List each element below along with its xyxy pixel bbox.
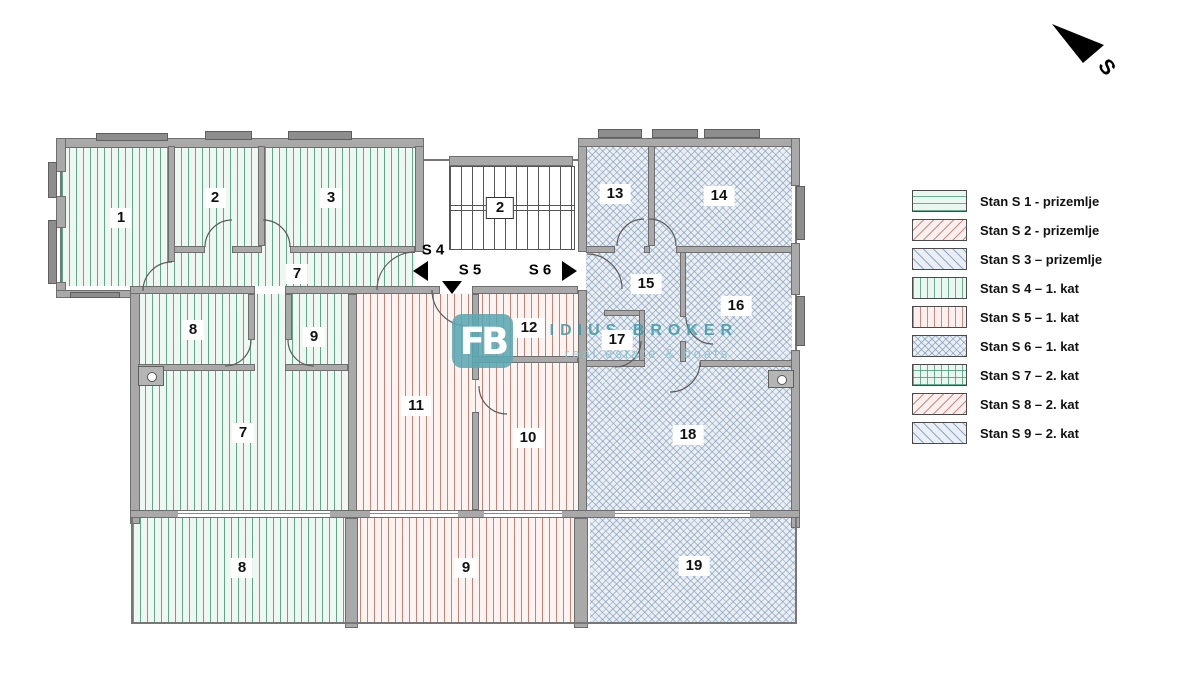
room-label-19: 19 — [679, 556, 710, 576]
legend-row-s6: Stan S 6 – 1. kat — [912, 335, 1102, 357]
legend-row-s1: Stan S 1 - prizemlje — [912, 190, 1102, 212]
marker-s6-label: S 6 — [529, 262, 552, 279]
room-label-16: 16 — [721, 296, 752, 316]
legend-swatch-s8 — [912, 393, 967, 415]
legend-swatch-s4 — [912, 277, 967, 299]
room-label-2: 2 — [204, 188, 226, 208]
legend-label-s9: Stan S 9 – 2. kat — [980, 426, 1079, 441]
watermark-subtitle: real estate & boats — [545, 346, 750, 361]
marker-s5-label: S 5 — [459, 262, 482, 279]
legend-label-s2: Stan S 2 - prizemlje — [980, 223, 1099, 238]
room-label-10: 10 — [513, 428, 544, 448]
room-label-8-balcony: 8 — [231, 558, 253, 578]
arrow-down-icon — [442, 281, 462, 294]
legend-row-s3: Stan S 3 – prizemlje — [912, 248, 1102, 270]
legend-row-s4: Stan S 4 – 1. kat — [912, 277, 1102, 299]
legend-swatch-s1 — [912, 190, 967, 212]
legend-row-s5: Stan S 5 – 1. kat — [912, 306, 1102, 328]
legend-label-s1: Stan S 1 - prizemlje — [980, 194, 1099, 209]
room-label-13: 13 — [600, 184, 631, 204]
room-label-14: 14 — [704, 186, 735, 206]
legend-swatch-s7 — [912, 364, 967, 386]
legend-label-s5: Stan S 5 – 1. kat — [980, 310, 1079, 325]
legend-swatch-s3 — [912, 248, 967, 270]
north-arrow: S — [1040, 10, 1150, 85]
arrow-left-icon — [413, 261, 428, 281]
north-arrow-label: S — [1093, 55, 1120, 80]
marker-s4-label: S 4 — [422, 242, 445, 259]
room-label-9: 9 — [303, 327, 325, 347]
legend-swatch-s6 — [912, 335, 967, 357]
watermark-title: FIDIUS BROKER — [524, 322, 748, 340]
legend-row-s7: Stan S 7 – 2. kat — [912, 364, 1102, 386]
room-label-7-hall: 7 — [286, 264, 308, 284]
legend-row-s8: Stan S 8 – 2. kat — [912, 393, 1102, 415]
room-label-9-balcony: 9 — [455, 558, 477, 578]
legend: Stan S 1 - prizemlje Stan S 2 - prizemlj… — [912, 190, 1102, 444]
legend-label-s6: Stan S 6 – 1. kat — [980, 339, 1079, 354]
arrow-right-icon — [562, 261, 577, 281]
room-label-3: 3 — [320, 188, 342, 208]
legend-swatch-s9 — [912, 422, 967, 444]
staircase-label: 2 — [486, 197, 514, 219]
legend-label-s8: Stan S 8 – 2. kat — [980, 397, 1079, 412]
watermark-logo: FB — [452, 314, 513, 368]
legend-swatch-s2 — [912, 219, 967, 241]
legend-row-s2: Stan S 2 - prizemlje — [912, 219, 1102, 241]
room-label-15: 15 — [631, 274, 662, 294]
legend-row-s9: Stan S 9 – 2. kat — [912, 422, 1102, 444]
room-label-7-big: 7 — [232, 423, 254, 443]
room-label-11: 11 — [401, 396, 431, 416]
room-label-12: 12 — [514, 318, 545, 338]
legend-label-s7: Stan S 7 – 2. kat — [980, 368, 1079, 383]
room-label-17: 17 — [602, 330, 633, 350]
north-arrow-icon — [1052, 24, 1104, 63]
legend-label-s3: Stan S 3 – prizemlje — [980, 252, 1102, 267]
floor-plan-page: 1 2 3 7 8 9 7 8 11 12 10 9 13 14 15 16 1… — [0, 0, 1200, 689]
room-label-1: 1 — [110, 208, 132, 228]
legend-label-s4: Stan S 4 – 1. kat — [980, 281, 1079, 296]
room-label-8: 8 — [182, 320, 204, 340]
legend-swatch-s5 — [912, 306, 967, 328]
room-label-18: 18 — [673, 425, 704, 445]
